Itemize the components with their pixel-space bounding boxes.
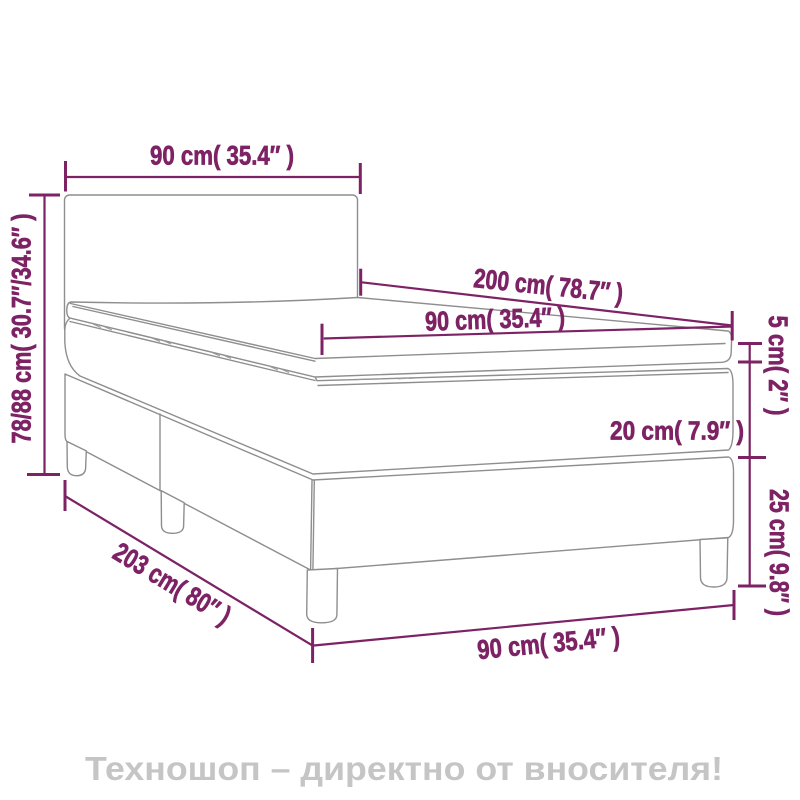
svg-text:90 cm( 35.4″ ): 90 cm( 35.4″ ) (150, 141, 294, 171)
svg-text:Техношоп – директно от вносите: Техношоп – директно от вносителя! (85, 750, 723, 787)
svg-text:25 cm( 9.8″ ): 25 cm( 9.8″ ) (764, 489, 794, 616)
svg-text:78/88 cm( 30.7″/34.6″ ): 78/88 cm( 30.7″/34.6″ ) (7, 214, 37, 444)
svg-text:20 cm( 7.9″ ): 20 cm( 7.9″ ) (610, 416, 744, 446)
svg-text:90 cm( 35.4″ ): 90 cm( 35.4″ ) (425, 302, 566, 337)
svg-text:5 cm( 2″ ): 5 cm( 2″ ) (763, 316, 793, 416)
